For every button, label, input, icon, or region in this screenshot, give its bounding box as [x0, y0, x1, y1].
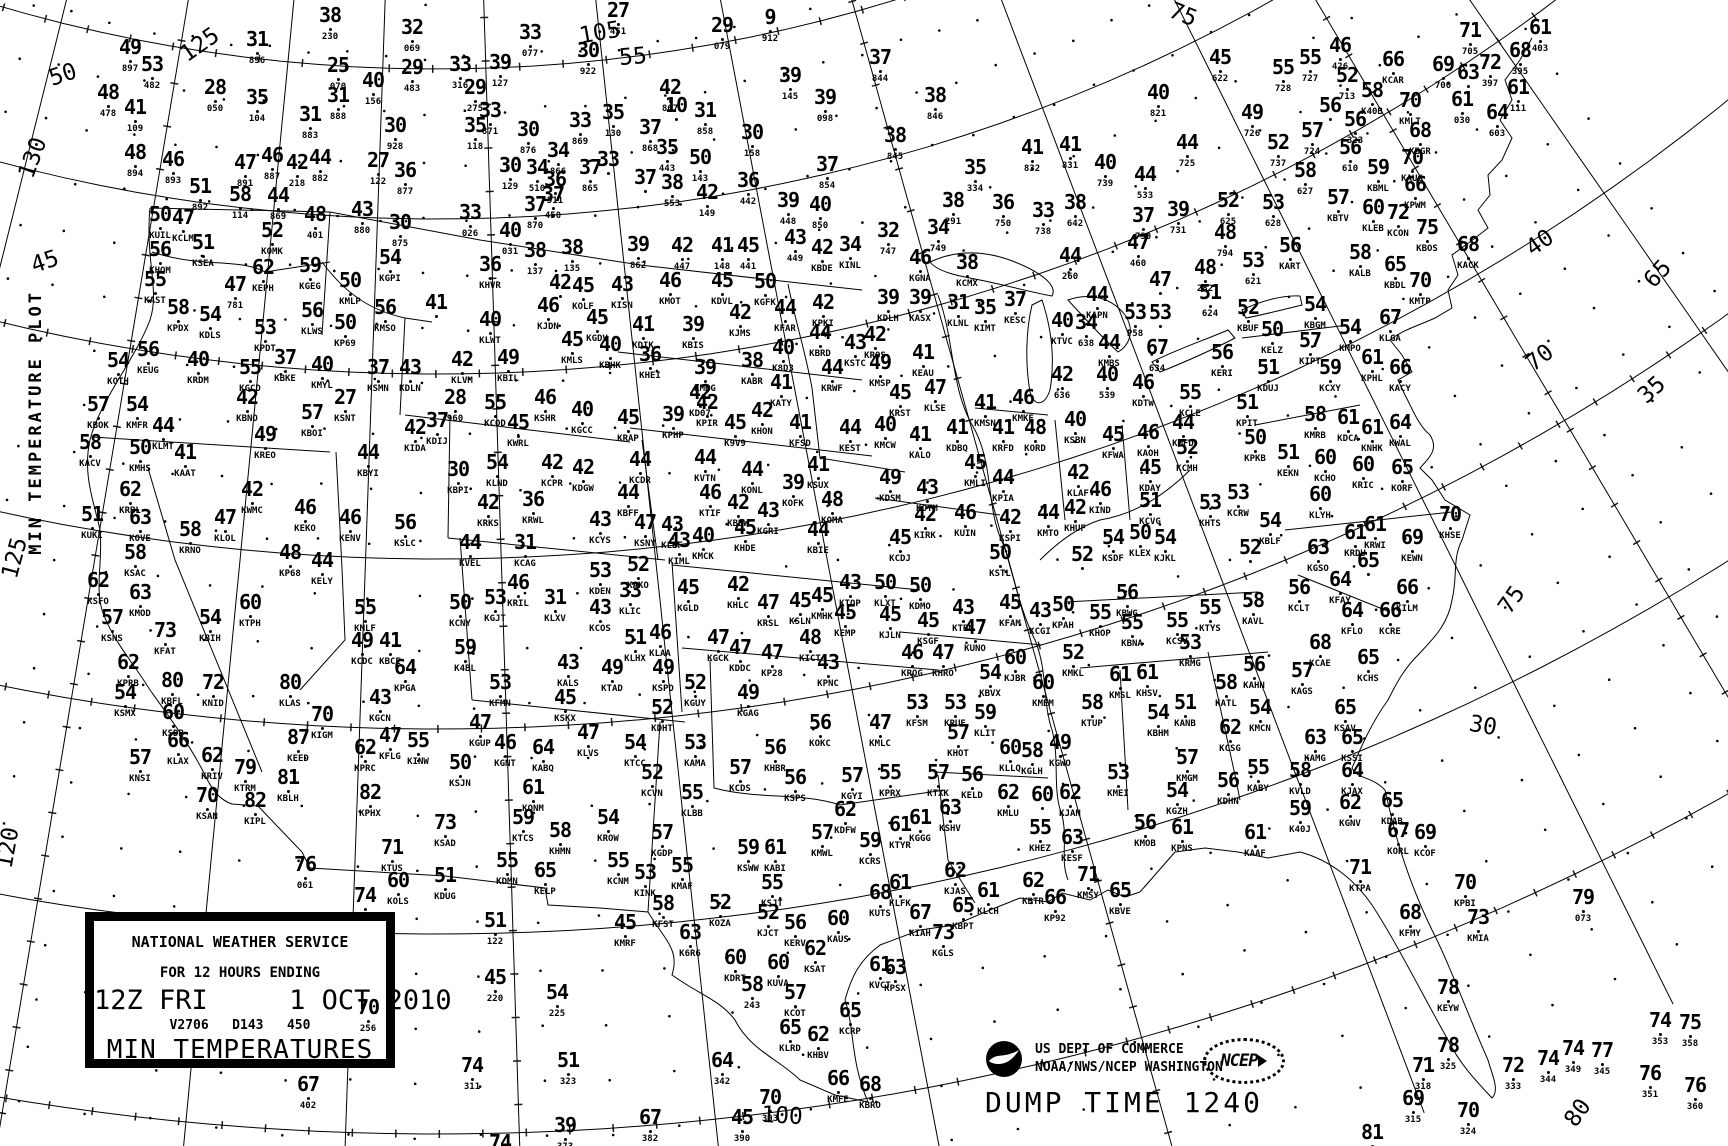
station-id: KIAH: [909, 929, 931, 939]
station-id: KRWF: [821, 384, 843, 394]
station-plot: 46KROG: [901, 640, 923, 679]
station-id: KFAR: [774, 324, 796, 334]
station-dot-icon: [1371, 370, 1374, 373]
station-id: KHMN: [549, 847, 571, 857]
station-min-temp: 48: [304, 202, 326, 226]
station-min-temp: 27: [367, 148, 389, 172]
station-id: KMCK: [692, 552, 714, 562]
station-dot-icon: [1351, 783, 1354, 786]
station-min-temp: 59: [299, 253, 321, 277]
station-plot: 39098: [814, 85, 836, 124]
station-plot: 46887: [261, 143, 283, 182]
station-id: KREO: [254, 451, 276, 461]
station-id: 750: [992, 219, 1014, 229]
station-plot: 62KHBV: [807, 1022, 829, 1061]
graticule-dot: [1427, 587, 1430, 590]
station-id: KHRO: [932, 669, 954, 679]
graticule-dot: [1171, 54, 1174, 57]
station-id: 642: [1064, 219, 1086, 229]
station-min-temp: 68: [1509, 38, 1531, 62]
station-min-temp: 56: [1134, 810, 1156, 834]
graticule-dot: [1710, 492, 1713, 495]
station-min-temp: 46: [901, 640, 923, 664]
station-plot: 65KELP: [534, 858, 556, 897]
station-id: 893: [162, 176, 184, 186]
station-dot-icon: [212, 695, 215, 698]
station-min-temp: 63: [1304, 725, 1326, 749]
station-min-temp: 49: [869, 350, 891, 374]
graticule-dot: [135, 738, 138, 741]
graticule-dot: [1529, 954, 1532, 957]
graticule-dot: [562, 379, 565, 382]
station-dot-icon: [1034, 440, 1037, 443]
station-dot-icon: [1225, 695, 1228, 698]
station-plot: 53KMEI: [1107, 760, 1129, 799]
station-plot: 74353: [1649, 1008, 1671, 1047]
station-id: KFLG: [379, 752, 401, 762]
station-min-temp: 43: [844, 330, 866, 354]
graticule-dot: [1229, 559, 1232, 562]
station-plot: 57KMWL: [811, 820, 833, 859]
station-min-temp: 69: [1402, 1086, 1424, 1110]
station-id: KLIT: [974, 729, 996, 739]
station-plot: 54KJKL: [1154, 525, 1176, 564]
station-dot-icon: [542, 760, 545, 763]
station-dot-icon: [751, 997, 754, 1000]
station-plot: 75358: [1679, 1010, 1701, 1049]
graticule-dot: [370, 488, 373, 491]
graticule-dot: [950, 1139, 953, 1142]
credit-agency: NOAA/NWS/NCEP WASHINGTON: [1035, 1060, 1223, 1075]
station-id: 738: [1032, 227, 1054, 237]
station-min-temp: 51: [81, 502, 103, 526]
station-min-temp: 41: [946, 415, 968, 439]
station-id: KERV: [784, 939, 806, 949]
station-min-temp: 38: [524, 238, 546, 262]
station-plot: 40156: [362, 68, 384, 107]
station-min-temp: 40: [187, 347, 209, 371]
graticule-dot: [993, 1020, 996, 1023]
station-plot: 56KERI: [1211, 340, 1233, 379]
station-id: KPGA: [394, 684, 416, 694]
station-id: KSJN: [449, 779, 471, 789]
station-id: KJBR: [1004, 674, 1026, 684]
station-id: 622: [1209, 74, 1231, 84]
station-plot: 70KMTP: [1409, 268, 1431, 307]
station-plot: 56KMOB: [1134, 810, 1156, 849]
station-id: KRDM: [187, 376, 209, 386]
station-plot: 46KGNT: [494, 730, 516, 769]
station-min-temp: 46: [1137, 420, 1159, 444]
graticule-dot: [915, 91, 918, 94]
station-min-temp: 40: [1051, 308, 1073, 332]
station-plot: 51323: [557, 1048, 579, 1087]
station-dot-icon: [794, 250, 797, 253]
station-min-temp: 55: [1247, 755, 1269, 779]
station-min-temp: 35: [602, 100, 624, 124]
station-id: KBVE: [1109, 907, 1131, 917]
station-id: KJLN: [879, 631, 901, 641]
station-dot-icon: [337, 78, 340, 81]
station-min-temp: 54: [1259, 508, 1281, 532]
station-dot-icon: [249, 380, 252, 383]
station-id: 781: [224, 301, 246, 311]
station-id: 883: [299, 131, 321, 141]
station-id: KDGW: [572, 484, 594, 494]
station-id: KJMS: [729, 329, 751, 339]
station-id: KAMA: [684, 759, 706, 769]
graticule-dot: [74, 183, 77, 186]
station-id: KIPL: [244, 817, 266, 827]
station-dot-icon: [826, 177, 829, 180]
station-dot-icon: [774, 860, 777, 863]
station-min-temp: 55: [484, 390, 506, 414]
station-dot-icon: [889, 490, 892, 493]
station-dot-icon: [162, 438, 165, 441]
graticule-dot: [1577, 189, 1580, 192]
station-id: 061: [294, 881, 316, 891]
graticule-dot: [173, 905, 176, 908]
station-id: KEUG: [137, 366, 159, 376]
station-min-temp: 59: [1289, 796, 1311, 820]
station-min-temp: 59: [454, 635, 476, 659]
station-plot: 42KBDE: [811, 235, 833, 274]
station-plot: 55KCOD: [484, 390, 506, 429]
station-dot-icon: [284, 370, 287, 373]
station-min-temp: 52: [641, 760, 663, 784]
graticule-dot: [1651, 901, 1654, 904]
station-plot: 41: [425, 290, 447, 319]
station-min-temp: 45: [734, 515, 756, 539]
station-dot-icon: [1186, 770, 1189, 773]
station-min-temp: 61: [764, 835, 786, 859]
station-id: 333: [1502, 1082, 1524, 1092]
station-id: KJDN: [537, 322, 559, 332]
graticule-dot: [113, 895, 116, 898]
station-plot: 77345: [1591, 1038, 1613, 1077]
station-id: 109: [124, 124, 146, 134]
station-dot-icon: [821, 260, 824, 263]
station-min-temp: 61: [1364, 512, 1386, 536]
station-plot: 41KSUX: [807, 452, 829, 491]
station-plot: 76360: [1684, 1073, 1706, 1112]
station-min-temp: 42: [541, 450, 563, 474]
station-min-temp: 55: [354, 595, 376, 619]
station-dot-icon: [1002, 490, 1005, 493]
graticule-dot: [1351, 201, 1354, 204]
station-plot: 52KCMH: [1176, 435, 1198, 474]
station-dot-icon: [644, 190, 647, 193]
station-dot-icon: [869, 1097, 872, 1100]
station-plot: 46KSHR: [534, 385, 556, 424]
station-plot: 46KDTW: [1132, 370, 1154, 409]
graticule-dot: [1176, 287, 1179, 290]
station-dot-icon: [831, 380, 834, 383]
station-id: KEMP: [834, 629, 856, 639]
station-id: KBLF: [1259, 537, 1281, 547]
graticule-dot: [1260, 1001, 1263, 1004]
station-min-temp: 39: [694, 355, 716, 379]
station-dot-icon: [662, 916, 665, 919]
station-plot: 67634: [1146, 335, 1168, 374]
station-id: KFAT: [154, 647, 176, 657]
station-min-temp: 42: [696, 390, 718, 414]
station-dot-icon: [819, 735, 822, 738]
graticule-dot: [1681, 446, 1684, 449]
station-dot-icon: [694, 755, 697, 758]
station-plot: 37450: [542, 182, 564, 221]
graticule-dot: [930, 1038, 933, 1041]
station-dot-icon: [1301, 683, 1304, 686]
graticule-dot: [546, 1134, 549, 1137]
graticule-dot: [1575, 387, 1578, 390]
station-plot: 55KAST: [144, 267, 166, 306]
station-dot-icon: [177, 320, 180, 323]
station-id: KBHK: [599, 361, 621, 371]
station-id: KSBN: [1064, 436, 1086, 446]
graticule-dot: [1668, 326, 1671, 329]
station-min-temp: 53: [1227, 480, 1249, 504]
station-dot-icon: [552, 207, 555, 210]
station-dot-icon: [1406, 600, 1409, 603]
graticule-dot: [1241, 196, 1244, 199]
graticule-dot: [1148, 4, 1151, 7]
station-min-temp: 47: [964, 615, 986, 639]
station-plot: 56KELD: [961, 762, 983, 801]
station-plot: 40KSBN: [1064, 407, 1086, 446]
station-id: KBIS: [682, 341, 704, 351]
station-dot-icon: [1349, 815, 1352, 818]
station-plot: 68395: [1509, 38, 1531, 77]
graticule-dot: [1454, 395, 1457, 398]
station-dot-icon: [394, 138, 397, 141]
station-min-temp: 52: [627, 552, 649, 576]
station-dot-icon: [704, 470, 707, 473]
graticule-dot: [809, 8, 812, 11]
station-plot: 50143: [689, 145, 711, 184]
station-min-temp: 31: [327, 83, 349, 107]
station-dot-icon: [837, 931, 840, 934]
graticule-dot: [179, 850, 182, 853]
station-dot-icon: [1512, 1078, 1515, 1081]
station-dot-icon: [184, 465, 187, 468]
station-dot-icon: [607, 172, 610, 175]
station-min-temp: 72: [1502, 1053, 1524, 1077]
station-min-temp: 61: [1451, 87, 1473, 111]
graticule-dot: [713, 138, 716, 141]
station-dot-icon: [544, 883, 547, 886]
station-plot: 37KBKE: [274, 345, 296, 384]
station-plot: 65KORF: [1391, 455, 1413, 494]
station-min-temp: 62: [1339, 790, 1361, 814]
station-plot: 52KDHT: [651, 695, 673, 734]
station-id: KLMT: [152, 442, 174, 452]
station-dot-icon: [532, 512, 535, 515]
graticule-dot: [900, 375, 903, 378]
station-id: KIMT: [974, 324, 996, 334]
graticule-dot: [601, 969, 604, 972]
station-min-temp: 36: [479, 252, 501, 276]
station-dot-icon: [1224, 245, 1227, 248]
graticule-dot: [638, 693, 641, 696]
station-min-temp: 70: [1439, 502, 1461, 526]
graticule-dot: [803, 674, 806, 677]
station-id: KDIJ: [426, 437, 448, 447]
station-dot-icon: [199, 199, 202, 202]
station-min-temp: 81: [277, 765, 299, 789]
graticule-dot: [994, 355, 997, 358]
station-plot: 57KGDP: [651, 820, 673, 859]
station-dot-icon: [1014, 670, 1017, 673]
station-id: KMAF: [671, 882, 693, 892]
station-id: KSPD: [652, 684, 674, 694]
station-dot-icon: [489, 123, 492, 126]
station-dot-icon: [1422, 1078, 1425, 1081]
station-min-temp: 46: [699, 480, 721, 504]
station-dot-icon: [987, 903, 990, 906]
graticule-dot: [1088, 664, 1091, 667]
station-min-temp: 57: [1301, 118, 1323, 142]
graticule-dot: [1446, 934, 1449, 937]
station-id: KROW: [597, 834, 619, 844]
legend-title: NATIONAL WEATHER SERVICE: [94, 933, 386, 951]
station-id: KTPH: [239, 619, 261, 629]
station-min-temp: 30: [389, 210, 411, 234]
station-plot: 53P58: [1124, 300, 1146, 339]
station-dot-icon: [617, 23, 620, 26]
station-id: KPDT: [254, 344, 276, 354]
station-min-temp: 41: [124, 95, 146, 119]
station-plot: 50KUIL: [149, 202, 171, 241]
station-id: 794: [1214, 249, 1236, 259]
station-dot-icon: [794, 790, 797, 793]
station-id: KBTV: [1327, 214, 1349, 224]
graticule-dot: [599, 262, 602, 265]
station-dot-icon: [1087, 887, 1090, 890]
station-min-temp: 68: [1399, 900, 1421, 924]
station-dot-icon: [297, 750, 300, 753]
station-min-temp: 40: [479, 307, 501, 331]
station-plot: 52737: [1267, 130, 1289, 169]
station-dot-icon: [837, 1091, 840, 1094]
station-plot: 66KMFE: [827, 1066, 849, 1105]
graticule-dot: [347, 1133, 350, 1136]
graticule-dot: [1476, 128, 1479, 131]
station-id: KMOD: [129, 609, 151, 619]
station-min-temp: 67: [1146, 335, 1168, 359]
station-min-temp: 50: [1244, 425, 1266, 449]
station-min-temp: 55: [1121, 610, 1143, 634]
station-dot-icon: [1184, 715, 1187, 718]
station-plot: 60KAUS: [827, 906, 849, 945]
station-min-temp: 80: [161, 668, 183, 692]
station-id: KDTW: [1132, 399, 1154, 409]
graticule-dot: [383, 110, 386, 113]
station-dot-icon: [522, 830, 525, 833]
station-id: 118: [464, 142, 486, 152]
station-dot-icon: [307, 1097, 310, 1100]
station-min-temp: 53: [1242, 248, 1264, 272]
station-min-temp: 67: [639, 1105, 661, 1129]
station-min-temp: 58: [549, 818, 571, 842]
graticule-dot: [900, 598, 903, 601]
credit-dept: US DEPT OF COMMERCE: [1035, 1042, 1223, 1057]
station-plot: 61111: [1507, 75, 1529, 114]
station-plot: 36877: [394, 158, 416, 197]
graticule-dot: [1043, 955, 1046, 958]
station-plot: 53KGJT: [484, 585, 506, 624]
station-dot-icon: [529, 45, 532, 48]
station-id: 460: [1127, 259, 1149, 269]
station-dot-icon: [974, 475, 977, 478]
station-min-temp: 58: [79, 430, 101, 454]
graticule-dot: [802, 1053, 805, 1056]
station-id: 724: [1301, 147, 1323, 157]
station-min-temp: 36: [992, 190, 1014, 214]
station-id: KEWN: [1401, 554, 1423, 564]
graticule-dot: [83, 1113, 86, 1116]
station-plot: 55727: [1299, 45, 1321, 84]
station-plot: 52: [1071, 542, 1093, 571]
station-plot: 46KAOH: [1137, 420, 1159, 459]
station-id: 451: [607, 27, 629, 37]
station-plot: 58KFST: [652, 891, 674, 930]
station-min-temp: 45: [1209, 45, 1231, 69]
station-dot-icon: [111, 630, 114, 633]
station-plot: 59K4BL: [454, 635, 476, 674]
station-id: 360: [1684, 1102, 1706, 1112]
station-id: KDHN: [1217, 797, 1239, 807]
station-min-temp: 60: [1314, 445, 1336, 469]
station-min-temp: 64: [711, 1048, 733, 1072]
graticule-dot: [853, 390, 856, 393]
station-min-temp: 74: [1562, 1036, 1584, 1060]
station-min-temp: 61: [977, 878, 999, 902]
graticule-dot: [266, 537, 269, 540]
graticule-dot: [1218, 388, 1221, 391]
station-dot-icon: [849, 257, 852, 260]
station-id: 887: [261, 172, 283, 182]
station-plot: 63KSHV: [939, 795, 961, 834]
graticule-dot: [193, 309, 196, 312]
station-id: KELD: [961, 791, 983, 801]
station-min-temp: 42: [812, 290, 834, 314]
graticule-dot: [127, 793, 130, 796]
station-min-temp: 36: [737, 168, 759, 192]
station-dot-icon: [209, 630, 212, 633]
graticule-dot: [764, 188, 767, 191]
station-id: KMKL: [1062, 669, 1084, 679]
station-min-temp: 57: [927, 760, 949, 784]
station-id: KGFK: [754, 298, 776, 308]
station-plot: 38KCMX: [956, 250, 978, 289]
graticule-dot: [1479, 564, 1482, 567]
station-id: KAUS: [827, 935, 849, 945]
station-dot-icon: [532, 800, 535, 803]
station-plot: 42KHLC: [727, 572, 749, 611]
station-plot: 57724: [1301, 118, 1323, 157]
station-id: KDUG: [434, 892, 456, 902]
station-id: 402: [297, 1101, 319, 1111]
station-id: KSNS: [101, 634, 123, 644]
station-dot-icon: [97, 417, 100, 420]
graticule-dot: [185, 796, 188, 799]
station-min-temp: 44: [1134, 162, 1156, 186]
station-min-temp: 46: [162, 147, 184, 171]
station-dot-icon: [717, 650, 720, 653]
station-dot-icon: [956, 440, 959, 443]
station-id: KSPS: [784, 794, 806, 804]
